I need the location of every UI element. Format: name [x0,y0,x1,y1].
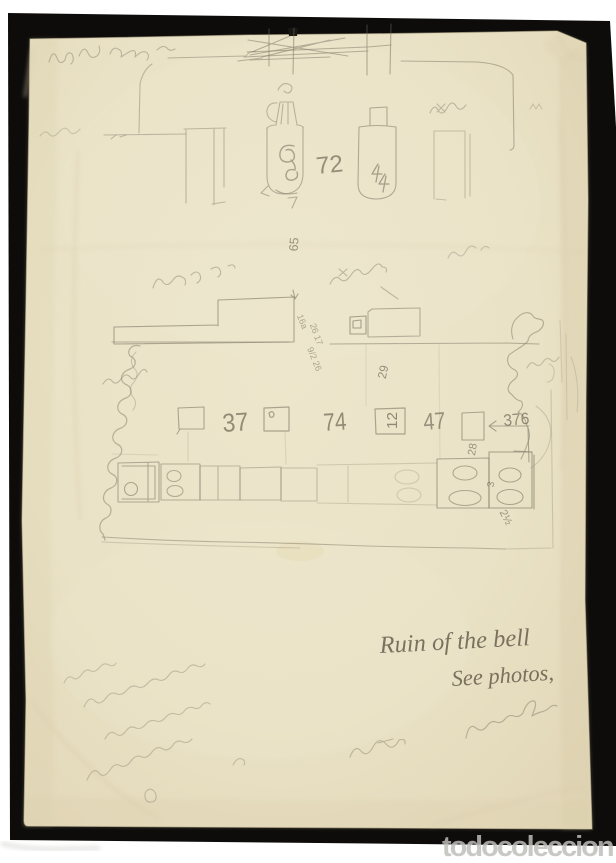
svg-text:74: 74 [322,407,347,437]
svg-text:376: 376 [503,410,530,430]
svg-text:28: 28 [466,442,480,456]
svg-text:47: 47 [423,408,447,436]
svg-text:37: 37 [221,406,249,438]
svg-text:65: 65 [286,237,301,252]
svg-text:12: 12 [384,412,401,429]
svg-text:72: 72 [315,150,345,180]
